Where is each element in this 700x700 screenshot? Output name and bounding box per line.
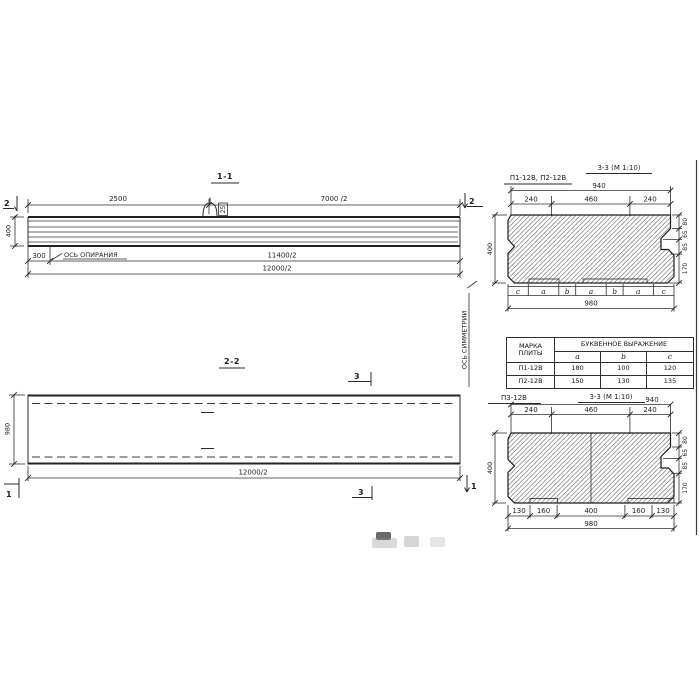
cross-section-b: П3-12В 3-3 (М 1:10) 940 240 460 240 400 — [486, 393, 689, 532]
section-a-dim-85: 85 — [682, 243, 689, 251]
symmetry-axis: ОСЬ СИММЕТРИИ — [461, 281, 478, 387]
dim-11400-2: 11400/2 — [267, 252, 296, 260]
dim-7000-2: 7000 /2 — [321, 195, 348, 203]
section-a-dim-80: 80 — [682, 218, 689, 226]
loop-label: 25 — [220, 206, 227, 214]
section-b-dim-940: 940 — [645, 396, 658, 404]
letter-a3: a — [636, 287, 640, 296]
table-header-expression: БУКВЕННОЕ ВЫРАЖЕНИЕ — [555, 338, 694, 352]
table-cell-c-2: 135 — [647, 376, 694, 389]
support-axis-label: ОСЬ ОПИРАНИЯ — [64, 251, 118, 259]
table-row: П1-12В 180 100 120 — [507, 363, 694, 376]
letter-c1: c — [516, 287, 521, 296]
dim-400-left: 400 — [5, 225, 13, 237]
spec-table: МАРКА ПЛИТЫ БУКВЕННОЕ ВЫРАЖЕНИЕ a b c П1… — [506, 337, 694, 389]
section-b-dim-400b: 400 — [584, 507, 597, 515]
marker-2-left-label: 2 — [4, 199, 10, 208]
table-subheader-b: b — [601, 352, 647, 363]
table-cell-a-1: 180 — [555, 363, 601, 376]
section-a-title: 3-3 (М 1:10) — [597, 164, 640, 172]
dim-300: 300 — [32, 252, 45, 260]
symmetry-axis-label: ОСЬ СИММЕТРИИ — [461, 311, 469, 370]
section-marker-3-bottom: 3 — [352, 486, 372, 500]
letter-b1: b — [565, 287, 570, 296]
table-cell-b-2: 130 — [601, 376, 647, 389]
section-b-dim-65: 65 — [682, 449, 689, 457]
section-b-dim-130r: 130 — [656, 507, 669, 515]
marker-1-right-label: 1 — [471, 482, 477, 491]
letter-a2: a — [589, 287, 593, 296]
section-b-dim-400: 400 — [486, 462, 494, 474]
dim-2500: 2500 — [109, 195, 127, 203]
section-a-dim-65: 65 — [682, 230, 689, 238]
view-2-2: 2-2 3 980 12000/2 — [4, 357, 478, 500]
table-cell-c-1: 120 — [647, 363, 694, 376]
section-b-label: П3-12В — [501, 394, 527, 402]
table-cell-mark-1: П1-12В — [507, 363, 555, 376]
section-b-dim-160l: 160 — [537, 507, 550, 515]
letter-b2: b — [612, 287, 617, 296]
section-marker-2-left: 2 — [3, 196, 17, 211]
view-1-1-title: 1-1 — [217, 172, 233, 181]
section-b-dim-130l: 130 — [512, 507, 525, 515]
section-a-dim-400: 400 — [486, 243, 494, 255]
table-cell-mark-2: П2-12В — [507, 376, 555, 389]
section-b-dim-85: 85 — [682, 462, 689, 470]
marker-3-bottom-label: 3 — [358, 488, 364, 497]
dim-980-left: 980 — [4, 423, 12, 435]
table-subheader-a: a — [555, 352, 601, 363]
scan-smudge — [404, 536, 419, 547]
dim-12000-2: 12000/2 — [262, 265, 291, 273]
section-a-body — [508, 215, 674, 283]
section-a-dim-940: 940 — [592, 182, 605, 190]
section-a-dim-240l: 240 — [524, 196, 537, 204]
section-a-dim-980: 980 — [584, 300, 597, 308]
section-marker-1-right: 1 — [465, 475, 478, 492]
dim-12000-2-plan: 12000/2 — [238, 469, 267, 477]
table-row: П2-12В 150 130 135 — [507, 376, 694, 389]
letter-a1: a — [541, 287, 545, 296]
section-b-dim-980: 980 — [584, 520, 597, 528]
marker-3-top-label: 3 — [354, 372, 360, 381]
cross-section-a: П1-12В, П2-12В 3-3 (М 1:10) 940 240 460 … — [486, 164, 689, 312]
view-2-2-title: 2-2 — [224, 357, 240, 366]
table-header-mark: МАРКА ПЛИТЫ — [507, 338, 555, 363]
section-b-dim-80: 80 — [682, 436, 689, 444]
section-b-title: 3-3 (М 1:10) — [589, 393, 632, 401]
blueprint-sheet: 1-1 2500 7000 /2 25 — [0, 0, 700, 700]
marker-1-left-label: 1 — [6, 490, 12, 499]
section-b-dim-170: 170 — [682, 482, 689, 494]
section-b-dim-240l: 240 — [524, 406, 537, 414]
section-a-dim-460: 460 — [584, 196, 597, 204]
view-1-1: 1-1 2500 7000 /2 25 — [3, 172, 483, 278]
table-subheader-c: c — [647, 352, 694, 363]
section-a-dim-240r: 240 — [643, 196, 656, 204]
scan-smudge — [430, 537, 445, 547]
section-b-dim-240r: 240 — [643, 406, 656, 414]
marker-2-right-label: 2 — [469, 197, 475, 206]
table-cell-b-1: 100 — [601, 363, 647, 376]
section-marker-2-right: 2 — [463, 193, 484, 208]
section-a-dim-170: 170 — [682, 263, 689, 275]
section-a-label: П1-12В, П2-12В — [510, 174, 567, 182]
section-marker-3-top: 3 — [348, 372, 371, 386]
section-marker-1-left: 1 — [4, 478, 19, 499]
letter-c2: c — [662, 287, 667, 296]
section-b-dim-460: 460 — [584, 406, 597, 414]
scan-smudge — [372, 538, 397, 548]
table-cell-a-2: 150 — [555, 376, 601, 389]
section-b-dim-160r: 160 — [632, 507, 645, 515]
